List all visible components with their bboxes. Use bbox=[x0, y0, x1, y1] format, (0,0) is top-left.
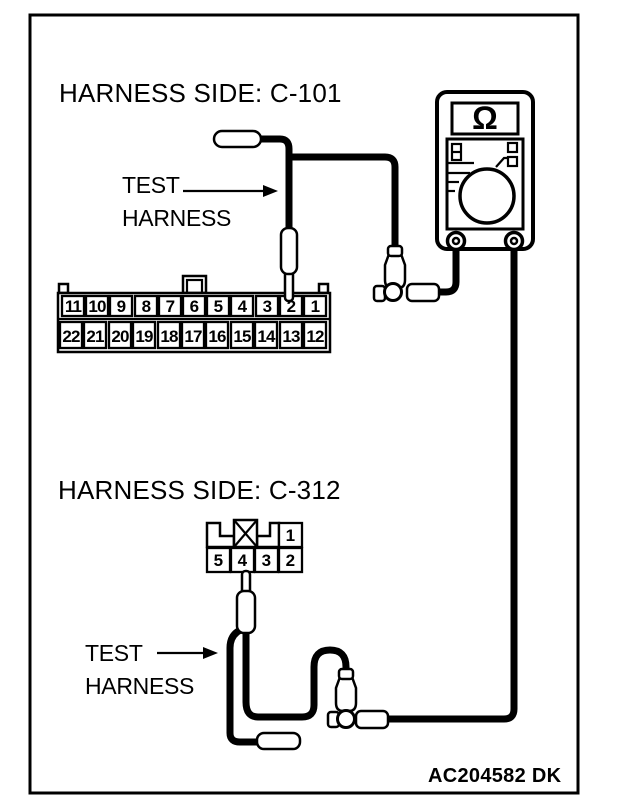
pin-number: 8 bbox=[142, 297, 151, 316]
pin-number: 4 bbox=[238, 297, 248, 316]
manual-figure-page: HARNESS SIDE: C-101 TEST HARNESS bbox=[0, 0, 624, 802]
c101-section-title: HARNESS SIDE: C-101 bbox=[59, 78, 342, 108]
pin-number: 13 bbox=[282, 327, 300, 346]
pin-number: 9 bbox=[117, 297, 126, 316]
pin-number: 16 bbox=[208, 327, 226, 346]
meter-dial bbox=[460, 169, 514, 223]
spade-terminal-c312 bbox=[257, 733, 300, 749]
housing-notch-left bbox=[59, 284, 68, 293]
pin-number: 18 bbox=[160, 327, 178, 346]
lead-coupler-c312 bbox=[328, 669, 388, 728]
pin-number: 5 bbox=[214, 297, 223, 316]
pin-number: 21 bbox=[86, 327, 104, 346]
c101-callout-arrow-icon bbox=[183, 185, 278, 197]
probe-body bbox=[281, 228, 297, 274]
spade-terminal-c101 bbox=[214, 131, 261, 147]
pin-number: 11 bbox=[65, 297, 82, 316]
c312-section-title: HARNESS SIDE: C-312 bbox=[58, 475, 341, 505]
meter-terminal-right bbox=[506, 233, 523, 250]
banana-plug-collar bbox=[339, 669, 353, 679]
terminal-center bbox=[511, 238, 517, 244]
banana-plug-body bbox=[336, 677, 356, 711]
pin-number: 1 bbox=[311, 297, 320, 316]
c101-callout-test: TEST bbox=[122, 172, 180, 198]
clamp-ring bbox=[338, 711, 355, 728]
test-probe-c101 bbox=[281, 228, 297, 301]
c101-callout-harness: HARNESS bbox=[122, 205, 231, 231]
housing-notch-right bbox=[319, 284, 328, 293]
banana-plug-collar bbox=[388, 246, 402, 256]
pin-number: 3 bbox=[263, 297, 272, 316]
terminal-center bbox=[453, 238, 459, 244]
clamp-ring bbox=[385, 284, 402, 301]
c312-callout-test: TEST bbox=[85, 640, 143, 666]
arrow-head bbox=[203, 647, 218, 659]
probe-coupler-barrel bbox=[356, 711, 388, 728]
blocked-cavity-icon bbox=[234, 520, 257, 547]
test-probe-c312 bbox=[237, 571, 255, 633]
meter-left-lead-wire bbox=[438, 248, 456, 292]
c312-callout-arrow-icon bbox=[157, 647, 218, 659]
housing-left-silhouette bbox=[207, 523, 234, 547]
probe-coupler-barrel bbox=[407, 284, 439, 301]
housing-mid-silhouette bbox=[257, 523, 279, 547]
pin-number: 22 bbox=[62, 327, 80, 346]
c101-bottom-pin-row: 22 21 20 19 18 17 16 15 14 13 12 bbox=[60, 322, 326, 348]
meter-right-lead-wire bbox=[388, 248, 514, 719]
pin-number: 4 bbox=[238, 551, 248, 570]
pin-number: 10 bbox=[88, 297, 106, 316]
pin-number: 6 bbox=[190, 297, 199, 316]
pin-number: 1 bbox=[286, 526, 295, 545]
wiring-diagram: HARNESS SIDE: C-101 TEST HARNESS bbox=[0, 0, 624, 802]
pin-number: 14 bbox=[257, 327, 276, 346]
c312-callout-harness: HARNESS bbox=[85, 673, 194, 699]
connector-c312: 1 5 4 3 2 bbox=[207, 520, 302, 572]
c312-meter-branch-wire bbox=[246, 628, 346, 717]
pin-number: 17 bbox=[184, 327, 202, 346]
c312-bottom-pin-row: 5 4 3 2 bbox=[207, 548, 302, 572]
pin-number: 5 bbox=[214, 551, 223, 570]
ohm-symbol: Ω bbox=[472, 100, 498, 136]
lead-coupler-c101 bbox=[374, 246, 439, 301]
probe-needle bbox=[285, 271, 293, 301]
figure-code: AC204582 DK bbox=[428, 765, 562, 787]
ohmmeter-icon: Ω bbox=[437, 92, 533, 250]
arrow-head bbox=[263, 185, 278, 197]
pin-number: 20 bbox=[111, 327, 129, 346]
pin-number: 2 bbox=[286, 551, 295, 570]
probe-body bbox=[237, 591, 255, 633]
meter-terminal-left bbox=[448, 233, 465, 250]
pin-number: 3 bbox=[262, 551, 271, 570]
pin-number: 15 bbox=[233, 327, 251, 346]
c101-probe-wire bbox=[258, 139, 289, 232]
c101-meter-branch-wire bbox=[289, 157, 395, 252]
pin-number: 12 bbox=[306, 327, 324, 346]
pin-number: 7 bbox=[166, 297, 175, 316]
pin-number: 19 bbox=[135, 327, 153, 346]
